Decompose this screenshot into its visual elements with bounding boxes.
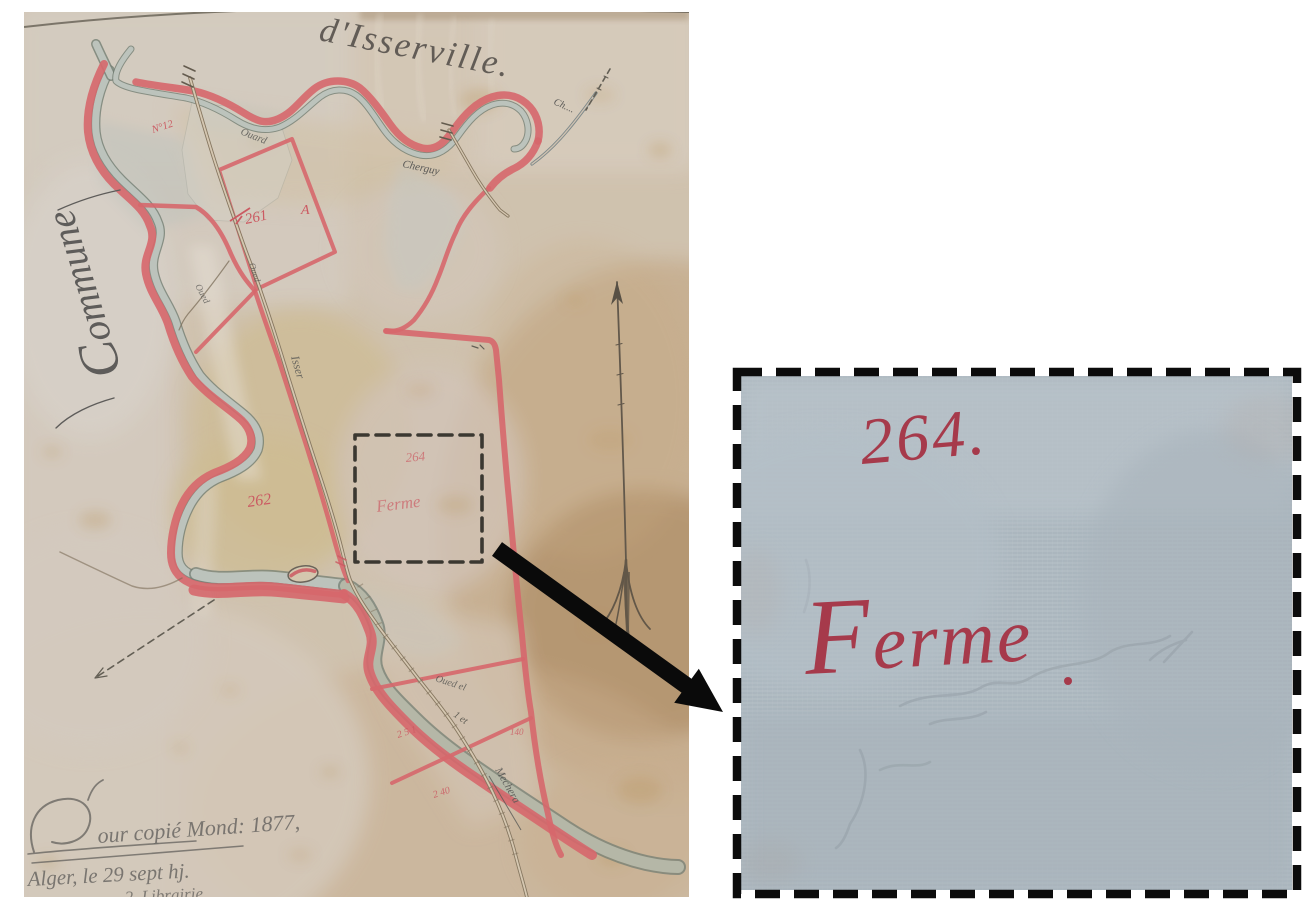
- svg-text:264.: 264.: [857, 395, 990, 479]
